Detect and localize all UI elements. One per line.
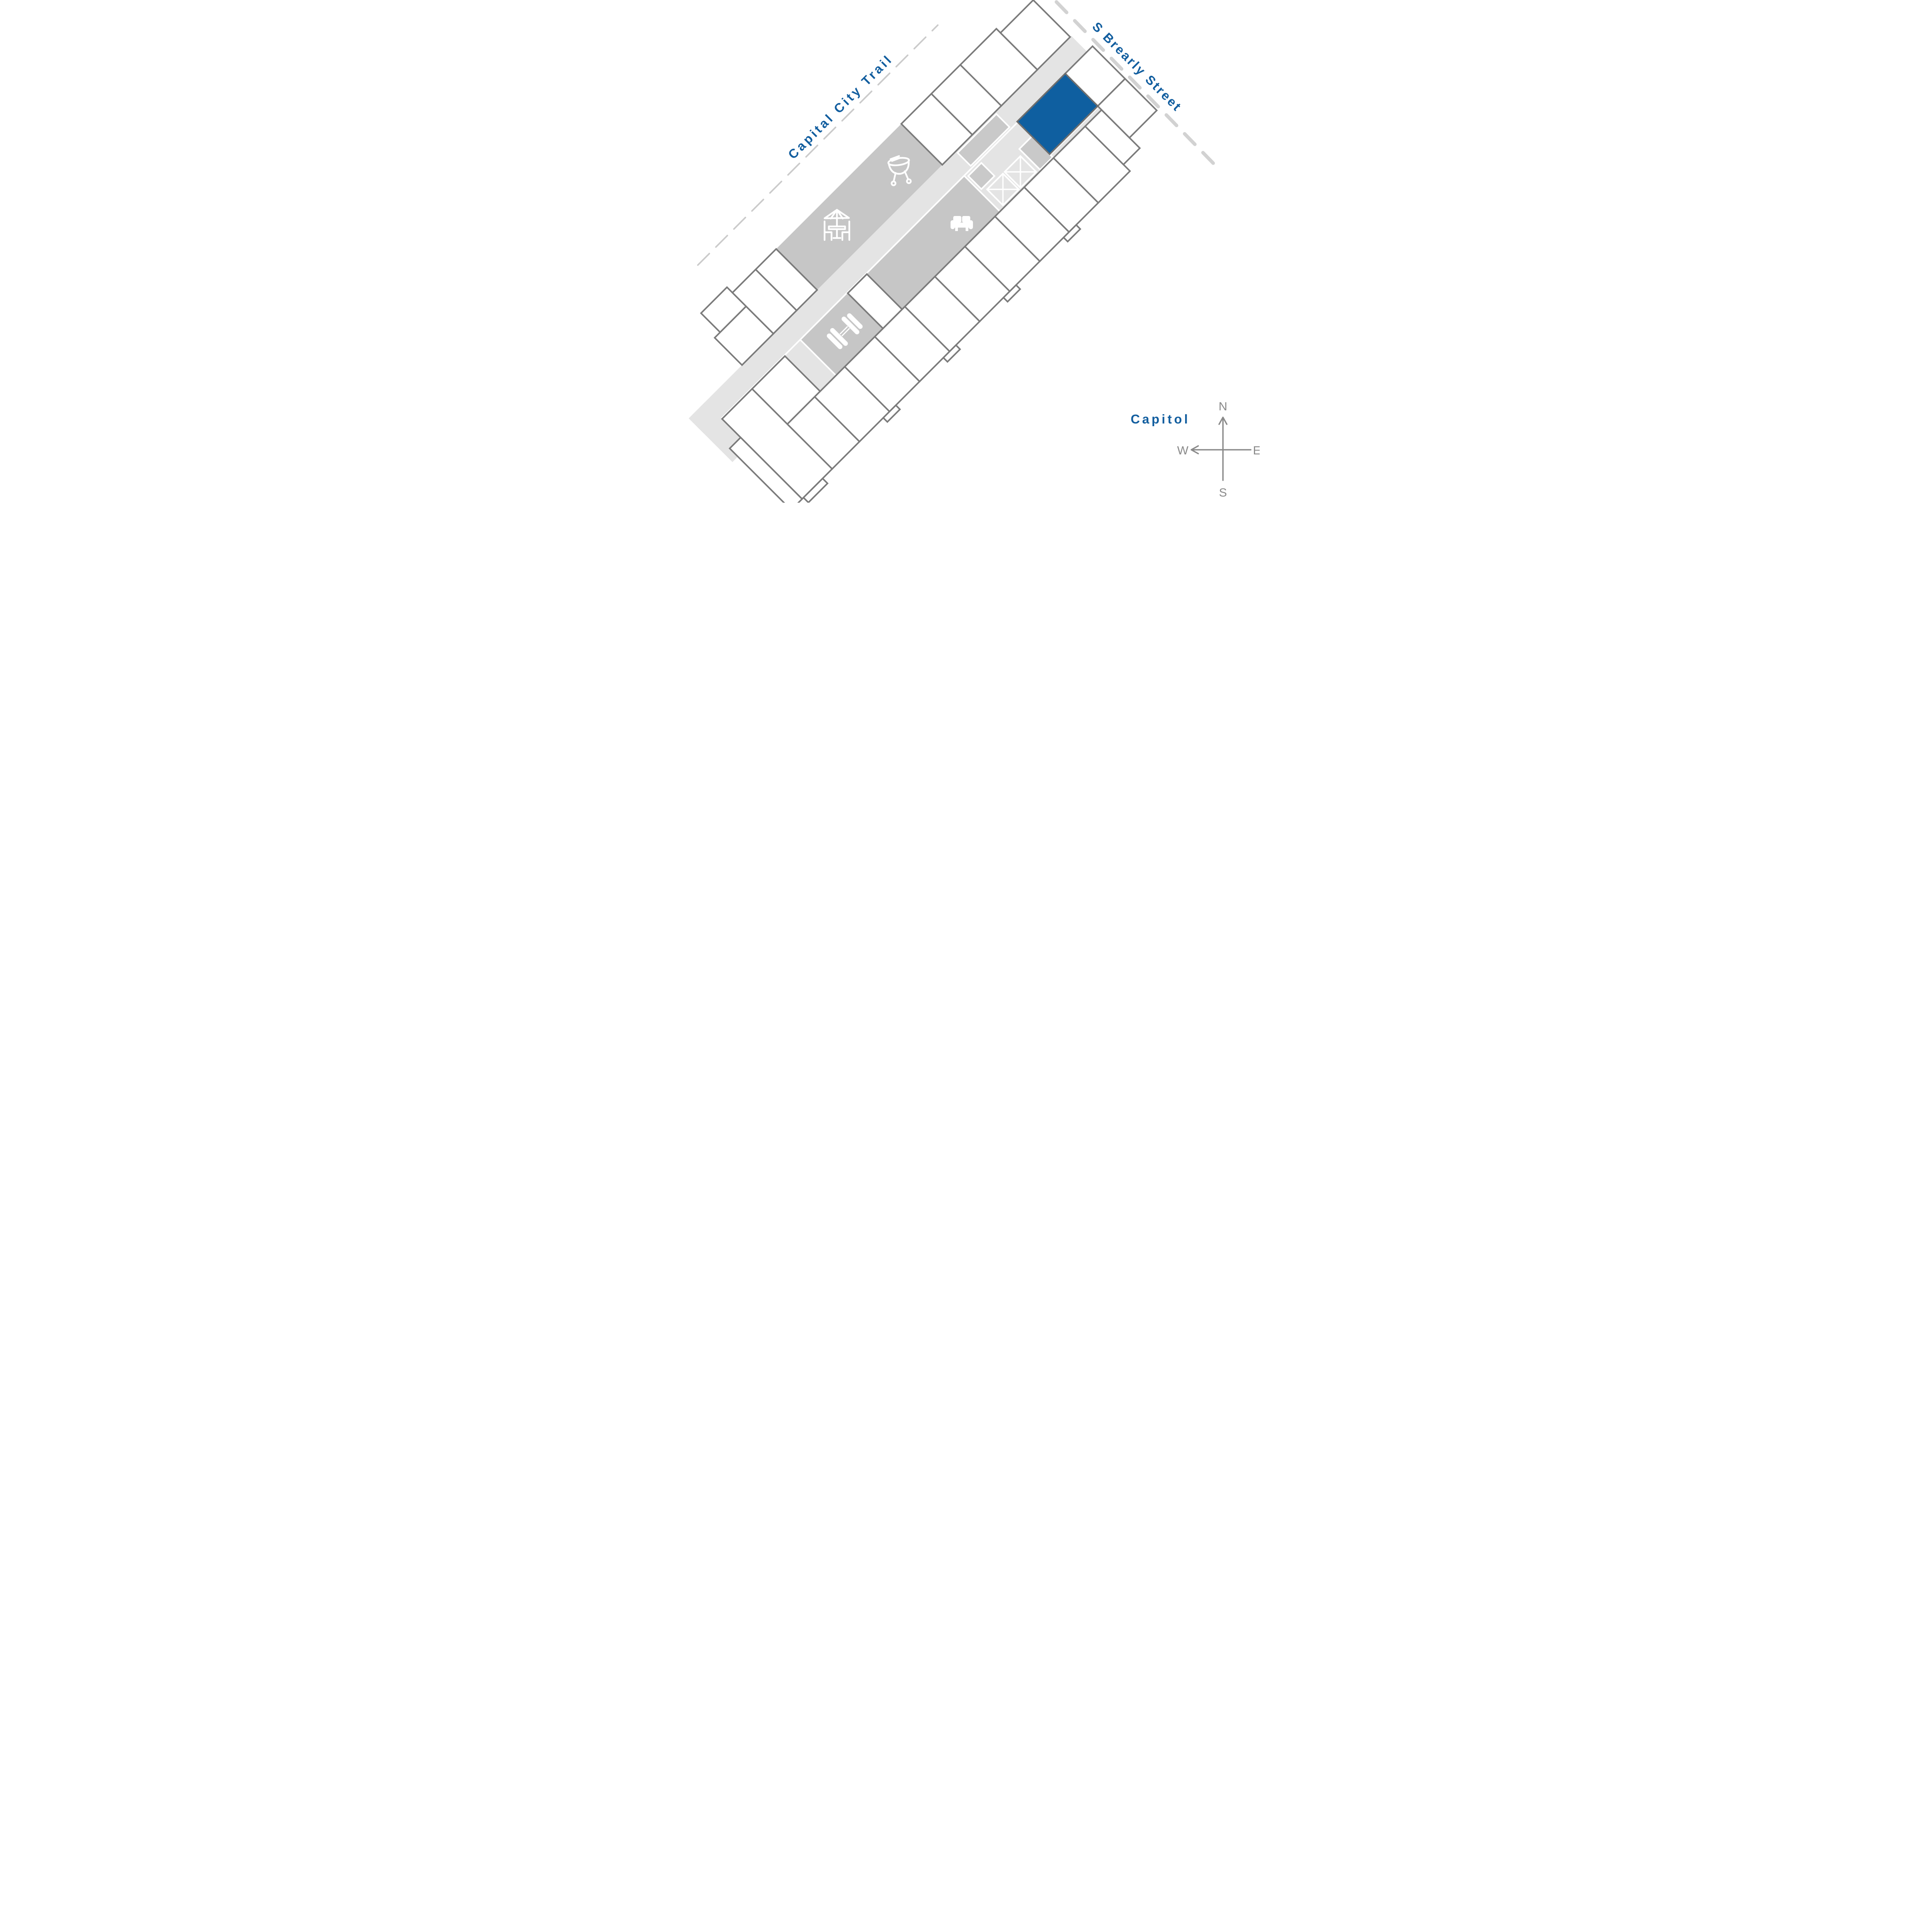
capitol-label: Capitol: [1131, 412, 1190, 426]
compass-west-label: W: [1177, 444, 1189, 457]
compass-east-label: E: [1253, 444, 1259, 457]
compass-south-label: S: [1219, 486, 1227, 499]
building-plan: [673, 0, 1179, 503]
compass-north-label: N: [1218, 400, 1227, 413]
site-plan-canvas: Capital City Trail S Brearly Street Capi…: [673, 0, 1260, 503]
site-plan-map: Capital City Trail S Brearly Street Capi…: [673, 0, 1260, 503]
trail-label: Capital City Trail: [785, 51, 895, 162]
